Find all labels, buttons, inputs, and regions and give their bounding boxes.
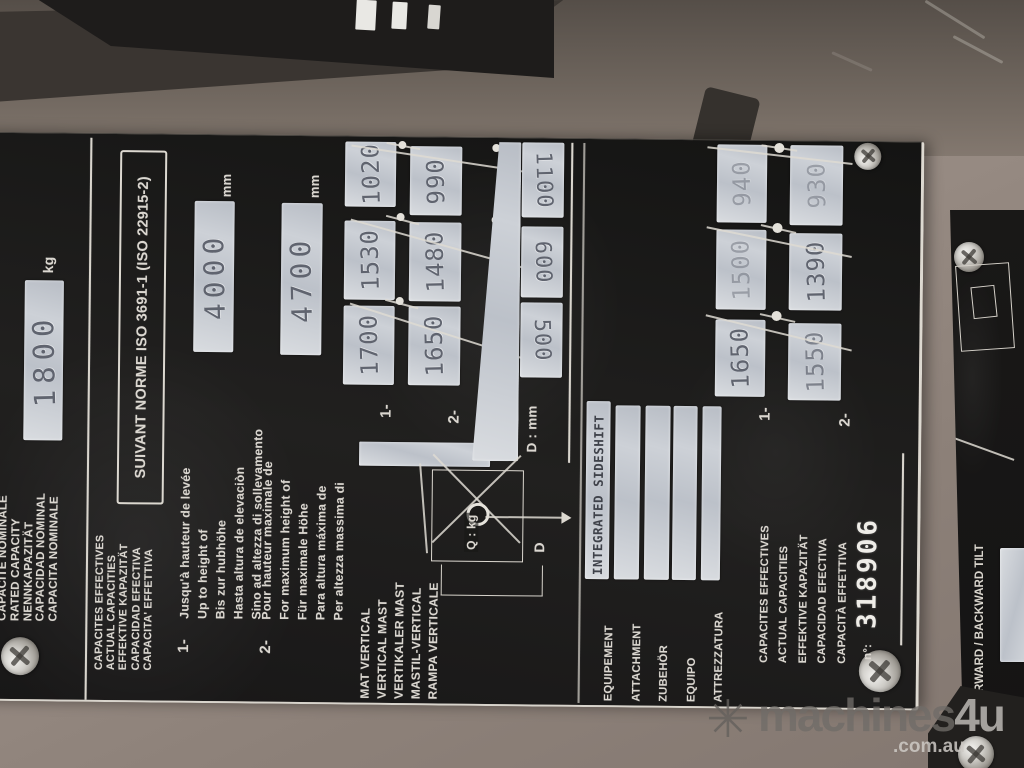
text-line: EQUIPEMENT xyxy=(596,579,625,701)
text-line: Hasta altura de elevaciòn xyxy=(229,429,249,620)
note1-lines: Jusqu'à hauteur de levéeUp to height ofB… xyxy=(175,428,267,620)
fork-blade-graphic xyxy=(472,142,521,461)
text-line: Up to height of xyxy=(193,428,213,619)
max-height-unit: mm xyxy=(307,175,322,199)
text-line: ATTREZZATURA xyxy=(706,580,735,702)
att-cap-r1c1: 1650 xyxy=(725,327,755,389)
actual-capacities-heading: CAPACITES EFFECTIVESACTUAL CAPACITIESEFF… xyxy=(93,482,156,671)
note-lift-height: 1- Jusqu'à hauteur de levéeUp to height … xyxy=(175,428,267,654)
screw-bottom-right xyxy=(854,143,881,170)
att-cap-r2c3: 930 xyxy=(802,162,831,209)
text-line: CAPACITA' EFFETTIVA xyxy=(142,482,156,670)
equipment-strip-text: INTEGRATED SIDESHIFT xyxy=(589,415,606,576)
tilt-plate: FORWARD / BACKWARD TILT xyxy=(938,210,1024,768)
equipment-strip-2 xyxy=(614,405,641,579)
text-line: Bis zur hubhöhe xyxy=(211,428,231,619)
text-line: CAPACITÀ EFFETTIVA xyxy=(833,442,855,664)
text-line: EFFEKTIVE KAPAZITÄT xyxy=(794,441,816,663)
mast-row1-label: 1- xyxy=(378,404,395,418)
max-height-value: 4700 xyxy=(284,235,319,323)
mast-cap-r1c1-box: 1700 xyxy=(343,305,395,385)
iso-standard-box: SUIVANT NORME ISO 3691-1 (ISO 22915-2) xyxy=(117,150,168,504)
tilt-plate-stamp-box xyxy=(1000,548,1024,662)
d-value-1-box: 500 xyxy=(520,302,563,377)
load-q-label: Q : kg xyxy=(464,513,478,552)
att-cap-r1c2-box: 1500 xyxy=(716,229,767,310)
rated-capacity-labels: CAPACITE NOMINALERATED CAPACITYNENNKAPAZ… xyxy=(0,443,62,622)
note2-lines: Pour hauteur maximale deFor maximum heig… xyxy=(257,461,349,620)
d-value-3-box: 1100 xyxy=(522,142,565,217)
note1-index: 1- xyxy=(175,639,192,653)
table-bottom-line xyxy=(568,143,573,463)
text-line: Für maximale Höhe xyxy=(293,461,313,620)
att-cap-r1c2: 1500 xyxy=(726,238,756,300)
text-line: ACTUAL CAPACITIES xyxy=(774,441,796,663)
mast-cap-r1c1: 1700 xyxy=(354,314,384,376)
note2-index: 2- xyxy=(257,640,274,654)
watermark-domain: .com.au xyxy=(893,736,965,758)
rated-capacity-value-box: 1800 xyxy=(23,280,64,440)
att-row1-label: 1- xyxy=(756,407,773,421)
text-line: EQUIPO xyxy=(678,580,707,702)
mast-cap-r1c3: 1020 xyxy=(356,143,386,205)
mast-cap-r1c2-box: 1530 xyxy=(344,220,396,300)
max-height-value-box: 4700 xyxy=(280,203,323,355)
att-cap-r2c1-box: 1550 xyxy=(788,323,842,401)
equipment-labels: EQUIPEMENTATTACHMENTZUBEHÖREQUIPOATTREZZ… xyxy=(596,579,735,702)
note-max-height: 2- Pour hauteur maximale deFor maximum h… xyxy=(257,461,349,654)
connector-node xyxy=(774,143,784,153)
connector-node xyxy=(397,213,405,221)
text-line: CAPACIDAD EFECTIVA xyxy=(813,441,835,663)
text-line: RATED CAPACITY xyxy=(9,443,24,621)
fork-heel-outline xyxy=(441,564,543,596)
lift-height-unit: mm xyxy=(219,174,234,198)
machines4u-star-icon: ✳ xyxy=(706,694,750,746)
rated-capacity-unit: kg xyxy=(40,257,56,274)
capacity-plate: CAPACITE NOMINALERATED CAPACITYNENNKAPAZ… xyxy=(0,132,924,711)
text-line: CAPACITES EFFECTIVES xyxy=(755,441,777,663)
light-slot xyxy=(391,2,407,30)
equipment-strip-1: INTEGRATED SIDESHIFT xyxy=(585,401,611,579)
light-slot xyxy=(355,0,377,31)
tilt-diagram-detail xyxy=(970,285,997,319)
rated-capacity-value: 1800 xyxy=(25,313,61,408)
text-line: Jusqu'à hauteur de levée xyxy=(175,428,195,619)
connector-node xyxy=(772,223,782,233)
connector-node xyxy=(396,297,404,305)
connector-node xyxy=(398,141,406,149)
watermark-brand-suffix: 4u xyxy=(954,689,1004,741)
d-value-1: 500 xyxy=(528,318,554,361)
mast-upright-graphic xyxy=(359,442,490,467)
text-line: ZUBEHÖR xyxy=(651,580,680,702)
att-cap-r1c3-box: 940 xyxy=(717,144,768,223)
screw-top-left xyxy=(1,637,39,675)
watermark-brand: machines4u xyxy=(758,688,1004,742)
serial-underline xyxy=(900,453,904,645)
mast-cap-r2c1: 1650 xyxy=(420,315,450,377)
text-line: Para altura máxima de xyxy=(311,462,331,621)
tilt-plate-label: FORWARD / BACKWARD TILT xyxy=(974,428,986,708)
light-slot xyxy=(427,5,441,30)
text-line: Pour hauteur maximale de xyxy=(257,461,277,620)
text-line: Per altezza massima di xyxy=(329,462,349,621)
d-row-label: D : mm xyxy=(524,405,539,452)
serial-label: n°: xyxy=(862,644,874,660)
equipment-strip-3 xyxy=(644,406,671,580)
mast-cap-r2c2-box: 1480 xyxy=(409,222,462,302)
section-divider xyxy=(85,138,93,700)
serial-number: 318906 xyxy=(852,517,883,629)
mast-cap-r2c1-box: 1650 xyxy=(408,306,461,386)
capacity-plate-wrapper: CAPACITE NOMINALERATED CAPACITYNENNKAPAZ… xyxy=(0,131,921,707)
lift-height-value-box: 4000 xyxy=(193,201,235,352)
mast-cap-r1c2: 1530 xyxy=(355,229,385,291)
d-value-3: 1100 xyxy=(530,151,556,209)
text-line: ATTACHMENT xyxy=(623,579,652,701)
text-line: CAPACITA NOMINALE xyxy=(48,443,63,621)
mast-row2-label: 2- xyxy=(445,410,462,424)
mast-cap-r2c3: 990 xyxy=(421,157,450,204)
d-dim-label: D xyxy=(531,542,547,552)
attachment-capacities-heading: CAPACITES EFFECTIVESACTUAL CAPACITIESEFF… xyxy=(755,441,854,664)
watermark-brand-main: machines xyxy=(758,689,954,741)
d-value-2-box: 600 xyxy=(521,226,564,297)
att-cap-r1c1-box: 1650 xyxy=(715,319,766,397)
d-arrow-head xyxy=(561,512,571,524)
photo-scene: CAPACITE NOMINALERATED CAPACITYNENNKAPAZ… xyxy=(0,0,1024,768)
text-line: For maximum height of xyxy=(275,461,295,620)
att-row2-label: 2- xyxy=(836,413,853,427)
d-value-2: 600 xyxy=(529,240,555,283)
connector-node xyxy=(772,311,782,321)
equipment-strip-5 xyxy=(701,406,722,580)
section-divider-2 xyxy=(578,143,586,703)
equipment-strip-4 xyxy=(672,406,698,580)
lift-height-value: 4000 xyxy=(196,232,231,320)
att-cap-r1c3: 940 xyxy=(727,160,756,207)
